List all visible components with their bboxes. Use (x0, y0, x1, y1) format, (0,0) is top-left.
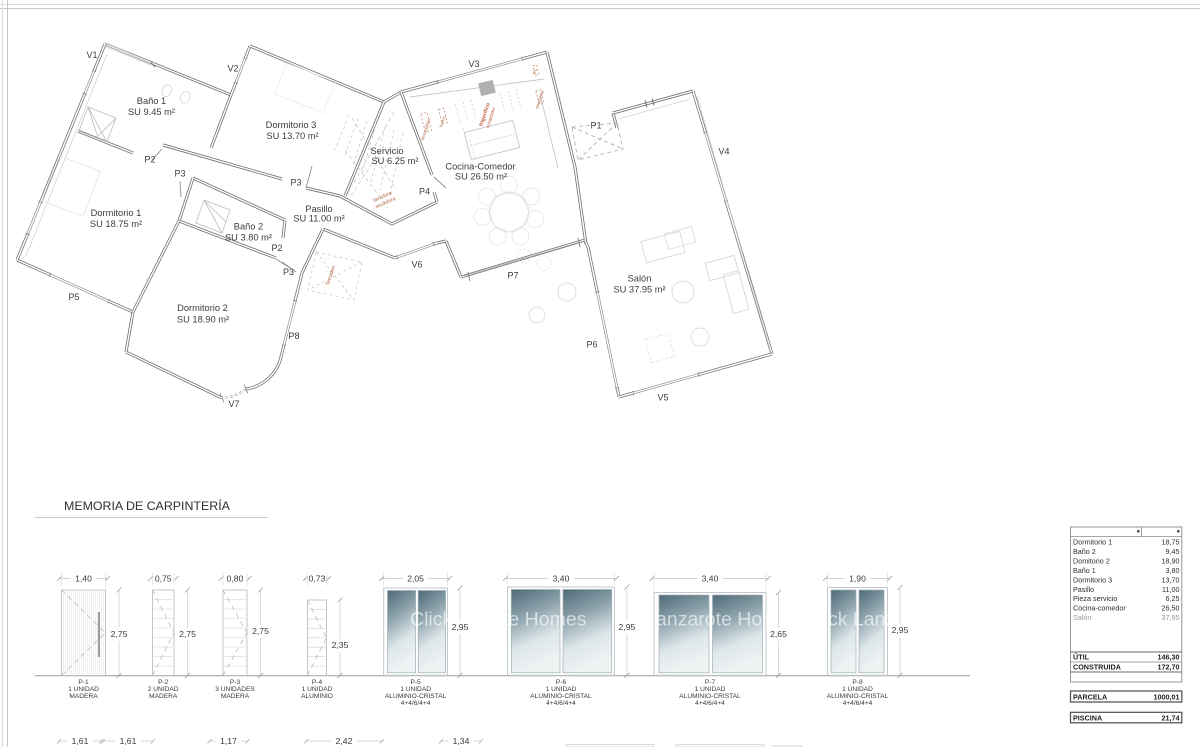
svg-text:Domitorio 2: Domitorio 2 (1073, 556, 1110, 565)
svg-text:SU 13.70 m²: SU 13.70 m² (266, 131, 318, 141)
svg-text:4+4/6/4+4: 4+4/6/4+4 (401, 700, 431, 707)
svg-text:Dormitorio 3: Dormitorio 3 (1073, 575, 1112, 584)
svg-text:2,95: 2,95 (619, 622, 636, 632)
svg-text:te Homes: te Homes (503, 609, 587, 631)
svg-text:Baño 1: Baño 1 (1073, 566, 1096, 575)
svg-text:V7: V7 (228, 399, 239, 409)
svg-text:11,00: 11,00 (1162, 585, 1179, 594)
svg-text:13,70: 13,70 (1162, 575, 1180, 584)
svg-text:1,17: 1,17 (220, 736, 237, 746)
svg-text:0,73: 0,73 (309, 574, 326, 584)
svg-text:1000,01: 1000,01 (1154, 693, 1180, 702)
svg-text:Baño 2: Baño 2 (1073, 547, 1096, 556)
svg-text:9,45: 9,45 (1166, 547, 1180, 556)
svg-text:P2: P2 (271, 243, 282, 253)
svg-text:V2: V2 (227, 64, 238, 74)
svg-text:P-5: P-5 (410, 679, 421, 686)
svg-text:Dormitorio 3: Dormitorio 3 (266, 120, 317, 130)
svg-text:SU 18.75 m²: SU 18.75 m² (90, 219, 142, 229)
svg-text:26,50: 26,50 (1162, 604, 1180, 613)
svg-text:Salón: Salón (628, 274, 652, 284)
svg-text:SU 3.80 m²: SU 3.80 m² (225, 233, 272, 243)
svg-text:MADERA: MADERA (149, 693, 178, 700)
svg-text:1,34: 1,34 (453, 736, 470, 746)
svg-text:37,95: 37,95 (1162, 613, 1180, 622)
svg-text:2,95: 2,95 (452, 622, 469, 632)
svg-text:2,65: 2,65 (770, 629, 787, 639)
svg-text:SU 26.50 m²: SU 26.50 m² (455, 172, 507, 182)
svg-text:Pasillo: Pasillo (305, 204, 332, 214)
svg-text:21,74: 21,74 (1162, 714, 1180, 723)
svg-text:P3: P3 (283, 267, 294, 277)
svg-text:SU 18.90 m²: SU 18.90 m² (177, 314, 229, 324)
svg-text:4+4/6/4+4: 4+4/6/4+4 (843, 700, 873, 707)
svg-text:P2: P2 (144, 155, 155, 165)
svg-text:Cocina-Comedor: Cocina-Comedor (445, 161, 515, 171)
svg-text:SU 6.25 m²: SU 6.25 m² (371, 156, 418, 166)
svg-text:ALUMINIO-CRISTAL: ALUMINIO-CRISTAL (679, 693, 741, 700)
svg-text:146,30: 146,30 (1158, 653, 1180, 662)
svg-text:2,75: 2,75 (111, 629, 128, 639)
svg-text:V1: V1 (86, 50, 97, 60)
svg-text:SU 11.00 m²: SU 11.00 m² (293, 214, 345, 224)
svg-text:4+4/6/4+4: 4+4/6/4+4 (546, 700, 576, 707)
svg-text:1,61: 1,61 (120, 736, 137, 746)
svg-text:2,05: 2,05 (407, 574, 424, 584)
svg-text:CONSTRUIDA: CONSTRUIDA (1073, 663, 1121, 672)
svg-text:V3: V3 (468, 59, 479, 69)
svg-text:6,25: 6,25 (1166, 594, 1180, 603)
svg-text:1,90: 1,90 (849, 574, 866, 584)
svg-text:ALUMINIO-CRISTAL: ALUMINIO-CRISTAL (530, 693, 592, 700)
svg-text:0,75: 0,75 (155, 574, 172, 584)
svg-text:Cocina-comedor: Cocina-comedor (1073, 604, 1126, 613)
svg-text:1,40: 1,40 (75, 574, 92, 584)
svg-text:2,35: 2,35 (332, 640, 349, 650)
svg-text:P-6: P-6 (556, 679, 567, 686)
svg-text:P3: P3 (290, 178, 301, 188)
svg-text:Dormitorio 1: Dormitorio 1 (1073, 538, 1112, 547)
svg-text:P-3: P-3 (230, 679, 241, 686)
svg-text:3,40: 3,40 (553, 574, 570, 584)
svg-text:P7: P7 (507, 271, 518, 281)
svg-text:2 UNIDAD: 2 UNIDAD (148, 686, 179, 693)
svg-text:18,75: 18,75 (1162, 538, 1180, 547)
svg-text:2,42: 2,42 (336, 736, 353, 746)
svg-text:1 UNIDAD: 1 UNIDAD (400, 686, 431, 693)
svg-text:1 UNIDAD: 1 UNIDAD (695, 686, 726, 693)
svg-text:P-4: P-4 (312, 679, 323, 686)
svg-text:V4: V4 (718, 147, 729, 157)
svg-text:1 UNIDAD: 1 UNIDAD (546, 686, 577, 693)
svg-text:Click: Click (410, 609, 452, 631)
svg-text:P5: P5 (68, 292, 79, 302)
svg-text:MADERA: MADERA (69, 693, 98, 700)
svg-text:MADERA: MADERA (221, 693, 250, 700)
svg-text:Baño 1: Baño 1 (137, 96, 166, 106)
svg-text:ALUMINIO: ALUMINIO (301, 693, 333, 700)
svg-text:Pieza servicio: Pieza servicio (1073, 594, 1117, 603)
svg-text:SU 9.45 m²: SU 9.45 m² (128, 107, 175, 117)
svg-text:Salón: Salón (1073, 613, 1091, 622)
svg-text:PISCINA: PISCINA (1073, 714, 1102, 723)
svg-text:ÚTIL: ÚTIL (1073, 653, 1090, 662)
svg-text:P6: P6 (586, 340, 597, 350)
svg-text:anzarote Hom: anzarote Hom (656, 609, 778, 631)
svg-text:P4: P4 (419, 187, 430, 197)
svg-text:ALUMINIO-CRISTAL: ALUMINIO-CRISTAL (827, 693, 889, 700)
svg-text:3,40: 3,40 (702, 574, 719, 584)
svg-text:Baño 2: Baño 2 (234, 222, 263, 232)
svg-text:3 UNIDADES: 3 UNIDADES (215, 686, 255, 693)
svg-text:V6: V6 (411, 260, 422, 270)
svg-text:2,75: 2,75 (252, 626, 269, 636)
svg-text:0,80: 0,80 (227, 574, 244, 584)
svg-text:4+4/6/4+4: 4+4/6/4+4 (695, 700, 725, 707)
svg-text:2,75: 2,75 (179, 629, 196, 639)
svg-text:Servicio: Servicio (370, 146, 403, 156)
svg-text:P3: P3 (174, 169, 185, 179)
svg-text:P-2: P-2 (158, 679, 169, 686)
svg-text:PARCELA: PARCELA (1073, 693, 1107, 702)
svg-text:172,70: 172,70 (1158, 663, 1180, 672)
svg-text:3,80: 3,80 (1166, 566, 1180, 575)
svg-text:P-1: P-1 (78, 679, 89, 686)
svg-text:V5: V5 (657, 393, 668, 403)
svg-text:SU 37.95 m²: SU 37.95 m² (613, 285, 665, 295)
svg-text:Pasillo: Pasillo (1073, 585, 1094, 594)
svg-text:P-7: P-7 (705, 679, 716, 686)
svg-text:P1: P1 (590, 121, 601, 131)
svg-text:P-8: P-8 (852, 679, 863, 686)
svg-text:Dormitorio 1: Dormitorio 1 (91, 208, 142, 218)
svg-text:1,61: 1,61 (72, 736, 89, 746)
svg-text:1 UNIDAD: 1 UNIDAD (302, 686, 333, 693)
svg-text:1 UNIDAD: 1 UNIDAD (842, 686, 873, 693)
svg-text:Dormitorio 2: Dormitorio 2 (177, 303, 228, 313)
svg-text:1 UNIDAD: 1 UNIDAD (68, 686, 99, 693)
svg-text:P8: P8 (288, 331, 299, 341)
svg-text:MEMORIA DE CARPINTERÍA: MEMORIA DE CARPINTERÍA (64, 498, 231, 513)
svg-text:ck Lanz: ck Lanz (828, 609, 895, 631)
svg-text:18,90: 18,90 (1162, 556, 1180, 565)
svg-text:ALUMINIO-CRISTAL: ALUMINIO-CRISTAL (385, 693, 447, 700)
